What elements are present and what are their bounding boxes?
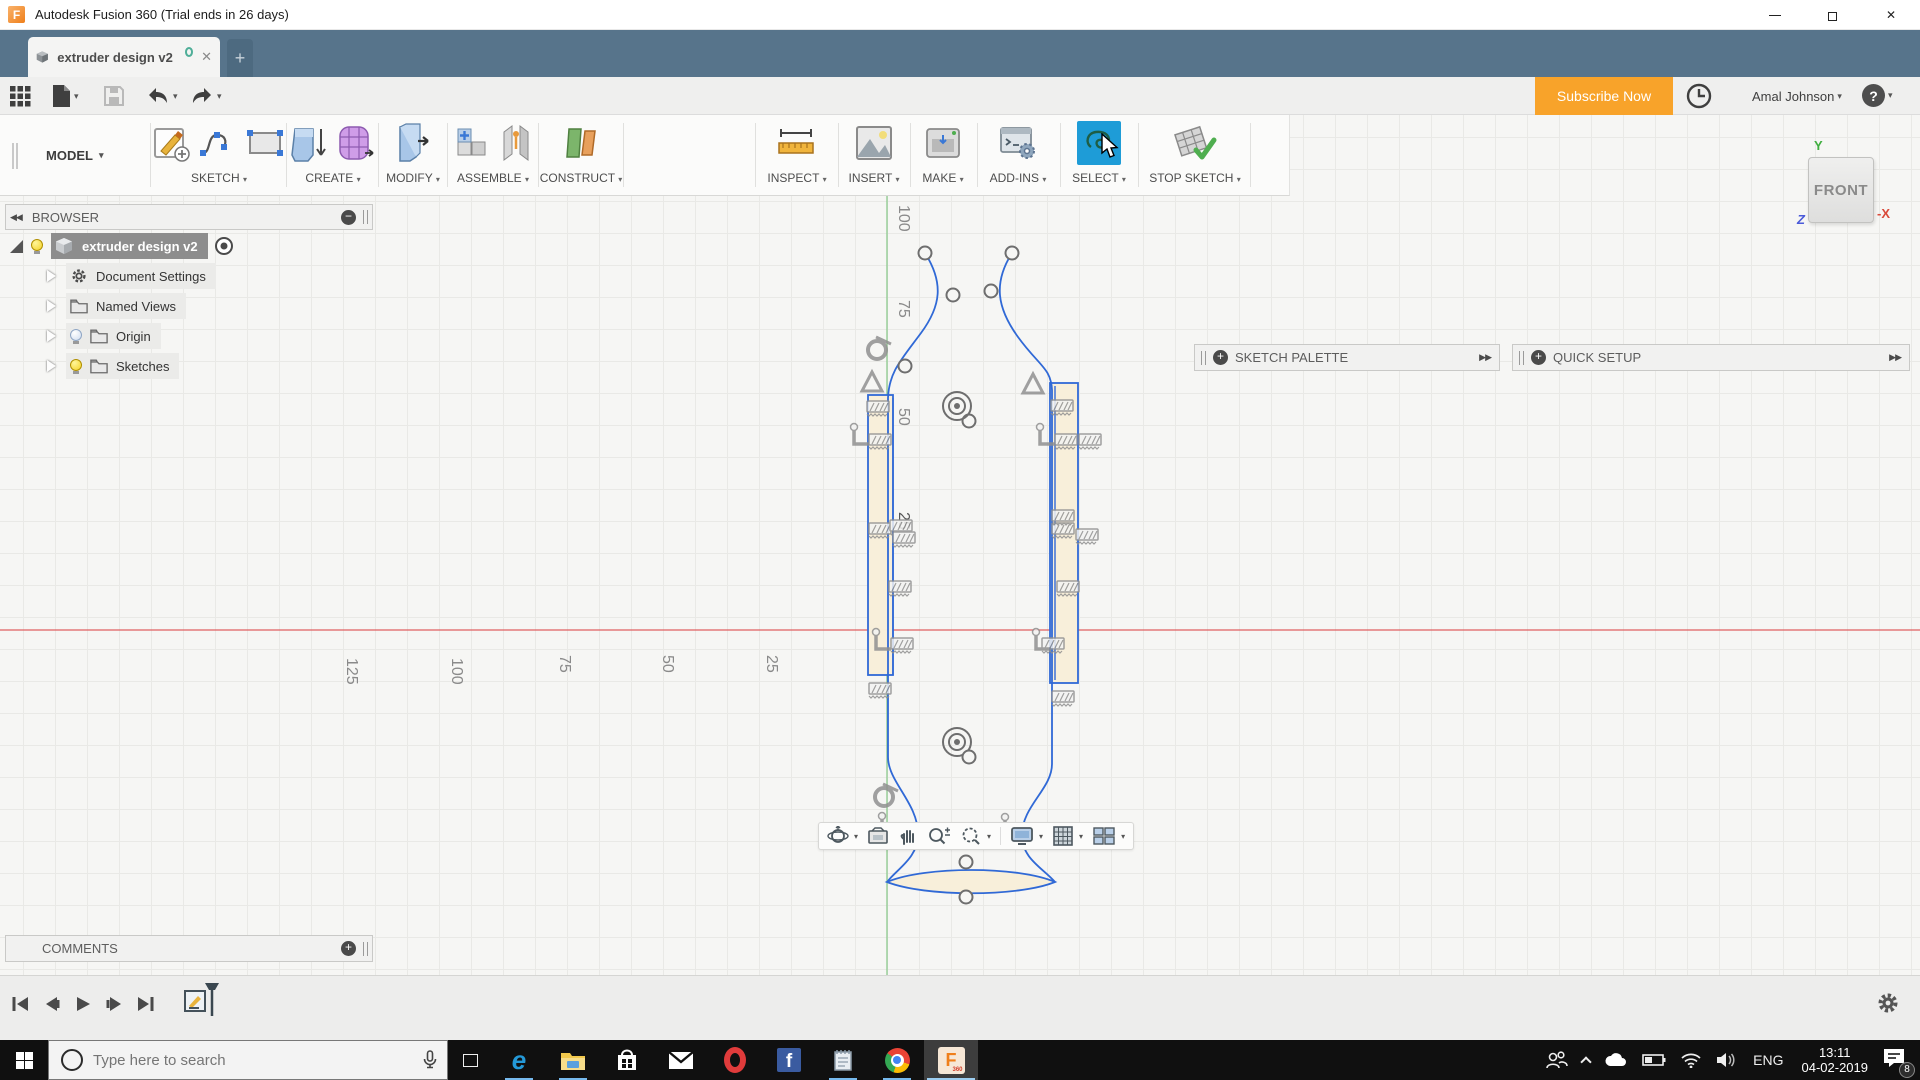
panel-grip[interactable] xyxy=(1201,351,1206,365)
user-account-button[interactable]: Amal Johnson ▾ xyxy=(1752,77,1842,115)
ribbon-group-sketch: SKETCH ▾ xyxy=(152,115,286,195)
gear-icon xyxy=(1876,991,1900,1015)
browser-item-label: Named Views xyxy=(96,299,176,314)
workspace-label: MODEL xyxy=(46,148,93,163)
ribbon-group-insert: INSERT ▾ xyxy=(839,115,909,195)
timeline-settings-button[interactable] xyxy=(1876,991,1900,1020)
ribbon-grip[interactable] xyxy=(12,143,18,169)
ribbon-group-label[interactable]: MAKE ▾ xyxy=(922,171,963,185)
minimize-panel-icon[interactable]: − xyxy=(341,210,356,225)
file-explorer-icon xyxy=(560,1049,586,1071)
group-label-text: MODIFY xyxy=(386,171,432,185)
v-ruler-75: 75 xyxy=(895,300,912,318)
pan-icon[interactable] xyxy=(898,826,918,846)
visibility-bulb-icon[interactable] xyxy=(70,359,82,374)
x-axis-label: -X xyxy=(1877,206,1890,221)
taskbar-file-explorer[interactable] xyxy=(546,1040,600,1080)
viewcube[interactable]: FRONT xyxy=(1808,157,1874,223)
ribbon-group-label[interactable]: ADD-INS ▾ xyxy=(990,171,1047,185)
panel-grip[interactable] xyxy=(363,210,368,224)
ribbon-group-label[interactable]: STOP SKETCH ▾ xyxy=(1149,171,1241,185)
caret-down-icon: ▾ xyxy=(525,175,529,184)
collapsed-triangle-icon[interactable] xyxy=(47,270,56,282)
windows-taskbar: e f xyxy=(0,1040,1920,1080)
ribbon-group-label[interactable]: MODIFY ▾ xyxy=(386,171,440,185)
step-back-button[interactable] xyxy=(42,995,62,1013)
browser-item-label: Origin xyxy=(116,329,151,344)
start-button[interactable] xyxy=(0,1040,48,1080)
folder-icon xyxy=(90,328,108,344)
document-cube-icon xyxy=(36,48,49,66)
stop-sketch-icon[interactable] xyxy=(1172,122,1218,164)
caret-down-icon: ▾ xyxy=(1122,175,1126,184)
caret-down-icon: ▾ xyxy=(1042,175,1046,184)
new-component-icon[interactable] xyxy=(452,122,492,164)
taskbar-notepad[interactable] xyxy=(816,1040,870,1080)
ribbon-group-assemble: ASSEMBLE ▾ xyxy=(449,115,537,195)
ribbon-group-label[interactable]: CONSTRUCT ▾ xyxy=(540,171,622,185)
h-ruler-100: 100 xyxy=(448,658,465,685)
folder-icon xyxy=(70,298,88,314)
group-label-text: INSERT xyxy=(849,171,893,185)
caret-down-icon: ▾ xyxy=(243,175,247,184)
collapsed-triangle-icon[interactable] xyxy=(47,300,56,312)
ribbon-group-create: CREATE ▾ xyxy=(288,115,378,195)
facebook-letter: f xyxy=(786,1052,792,1072)
h-ruler-50: 50 xyxy=(659,655,676,673)
job-status-button[interactable] xyxy=(1686,83,1712,109)
ribbon-group-label[interactable]: SKETCH ▾ xyxy=(191,171,247,185)
expand-panel-icon[interactable]: ▶▶ xyxy=(1889,352,1901,363)
browser-item-document-settings[interactable]: Document Settings xyxy=(43,263,234,289)
notification-badge: 8 xyxy=(1899,1062,1915,1078)
fusion-logo-letter: F xyxy=(13,8,20,22)
caret-down-icon: ▾ xyxy=(618,175,622,184)
navigation-bar: ▾ ▾ ▾ ▾ ▾ xyxy=(818,822,1134,850)
workspace-selector[interactable]: MODEL ▾ xyxy=(46,115,103,195)
notepad-icon xyxy=(832,1048,854,1072)
caret-down-icon: ▾ xyxy=(217,91,222,102)
volume-icon[interactable] xyxy=(1716,1052,1736,1068)
browser-tree: extruder design v2 Document Settings Nam… xyxy=(10,233,234,383)
v-ruler-50: 50 xyxy=(895,408,912,426)
window-titlebar: F Autodesk Fusion 360 (Trial ends in 26 … xyxy=(0,0,1920,30)
timeline-bar xyxy=(0,975,1920,1040)
caret-down-icon: ▾ xyxy=(960,175,964,184)
caret-down-icon: ▾ xyxy=(74,91,79,102)
folder-icon xyxy=(90,358,108,374)
sketch-lens-profile[interactable] xyxy=(887,870,1055,893)
taskbar-edge[interactable]: e xyxy=(492,1040,546,1080)
browser-item[interactable]: Document Settings xyxy=(66,263,216,289)
quick-setup-title: QUICK SETUP xyxy=(1553,350,1641,365)
ribbon-group-label[interactable]: CREATE ▾ xyxy=(305,171,360,185)
step-forward-button[interactable] xyxy=(104,995,124,1013)
close-icon: ✕ xyxy=(1886,8,1896,22)
group-label-text: CONSTRUCT xyxy=(540,171,615,185)
rectangle-icon[interactable] xyxy=(245,123,287,163)
y-axis-label: Y xyxy=(1814,138,1823,153)
mail-icon xyxy=(668,1051,694,1070)
viewcube-front-face[interactable]: FRONT xyxy=(1814,182,1868,199)
subscribe-now-button[interactable]: Subscribe Now xyxy=(1535,77,1673,115)
play-button[interactable] xyxy=(74,995,92,1013)
group-label-text: INSPECT xyxy=(767,171,819,185)
sync-status-icon xyxy=(185,47,193,57)
h-ruler-75: 75 xyxy=(556,655,573,673)
group-label-text: CREATE xyxy=(305,171,353,185)
grid-settings-icon[interactable] xyxy=(1052,826,1074,846)
restore-button[interactable] xyxy=(1804,0,1862,30)
h-ruler-125: 125 xyxy=(343,658,360,685)
plus-glyph: + xyxy=(345,940,352,954)
caret-down-icon[interactable]: ▾ xyxy=(1121,832,1125,841)
taskbar-facebook[interactable]: f xyxy=(762,1040,816,1080)
v-ruler-100: 100 xyxy=(895,205,912,232)
window-title: Autodesk Fusion 360 (Trial ends in 26 da… xyxy=(35,7,289,22)
redo-button[interactable]: ▾ xyxy=(190,80,222,112)
display-settings-icon[interactable] xyxy=(1010,826,1034,846)
browser-item[interactable]: Origin xyxy=(66,323,161,349)
help-icon: ? xyxy=(1862,84,1885,107)
caret-down-icon[interactable]: ▾ xyxy=(1079,832,1083,841)
taskbar-search[interactable] xyxy=(48,1040,448,1080)
caret-down-icon: ▾ xyxy=(1837,91,1842,102)
document-tab-bar: extruder design v2 ✕ + xyxy=(0,30,1920,77)
facebook-icon: f xyxy=(777,1048,801,1072)
expand-triangle-icon[interactable] xyxy=(10,240,23,253)
minimize-button[interactable] xyxy=(1746,0,1804,30)
clock-icon xyxy=(1686,83,1712,109)
windows-logo-icon xyxy=(16,1052,33,1069)
undo-button[interactable]: ▾ xyxy=(146,80,178,112)
ribbon-group-label[interactable]: INSERT ▾ xyxy=(849,171,900,185)
caret-down-icon[interactable]: ▾ xyxy=(854,832,858,841)
ribbon-group-select: SELECT ▾ xyxy=(1062,115,1136,195)
cortana-icon xyxy=(61,1049,83,1071)
file-icon xyxy=(52,85,71,107)
sketch-spline-right[interactable] xyxy=(1000,253,1055,882)
search-input[interactable] xyxy=(93,1052,423,1069)
ribbon-group-modify: MODIFY ▾ xyxy=(380,115,446,195)
spline-icon[interactable] xyxy=(197,123,239,163)
browser-item[interactable]: Named Views xyxy=(66,293,186,319)
caret-down-icon: ▾ xyxy=(1237,175,1241,184)
subscribe-label: Subscribe Now xyxy=(1557,88,1651,104)
insert-image-icon[interactable] xyxy=(853,123,895,163)
tab-close-icon[interactable]: ✕ xyxy=(201,49,212,65)
ribbon-group-inspect: INSPECT ▾ xyxy=(757,115,837,195)
taskbar-store[interactable] xyxy=(600,1040,654,1080)
viewports-icon[interactable] xyxy=(1092,826,1116,846)
joint-icon[interactable] xyxy=(498,122,534,164)
ruler-labels: 125 100 75 50 25 100 75 50 25 xyxy=(343,205,912,685)
panel-grip[interactable] xyxy=(363,942,368,956)
group-label-text: SKETCH xyxy=(191,171,240,185)
fusion-360-sub: 360 xyxy=(952,1067,962,1073)
ribbon-group-label[interactable]: ASSEMBLE ▾ xyxy=(457,171,529,185)
save-icon xyxy=(104,86,124,106)
chrome-icon xyxy=(885,1048,910,1073)
show-hidden-icons-chevron[interactable] xyxy=(1580,1056,1591,1067)
ribbon-group-addins: ADD-INS ▾ xyxy=(978,115,1058,195)
wifi-icon[interactable] xyxy=(1680,1052,1702,1068)
browser-item[interactable]: Sketches xyxy=(66,353,179,379)
ribbon-group-stop-sketch: STOP SKETCH ▾ xyxy=(1140,115,1250,195)
group-label-text: MAKE xyxy=(922,171,956,185)
comments-title: COMMENTS xyxy=(42,941,118,956)
app-grid-icon xyxy=(10,86,31,107)
task-view-button[interactable] xyxy=(448,1040,492,1080)
activate-component-radio[interactable] xyxy=(214,236,234,256)
user-name: Amal Johnson xyxy=(1752,89,1834,104)
taskbar-fusion360[interactable]: F 360 xyxy=(924,1040,978,1080)
browser-item-origin[interactable]: Origin xyxy=(43,323,234,349)
measure-icon[interactable] xyxy=(775,123,819,163)
timeline-marker[interactable] xyxy=(204,982,220,1016)
caret-down-icon: ▾ xyxy=(823,175,827,184)
caret-down-icon: ▾ xyxy=(99,150,104,161)
undo-icon xyxy=(146,86,170,106)
extrude-icon[interactable] xyxy=(289,121,329,165)
sketch-palette-panel[interactable]: + SKETCH PALETTE ▶▶ xyxy=(1194,344,1500,371)
3d-print-icon[interactable] xyxy=(923,123,963,163)
ribbon-group-construct: CONSTRUCT ▾ xyxy=(540,115,622,195)
construct-plane-icon[interactable] xyxy=(561,121,601,165)
people-icon[interactable] xyxy=(1546,1051,1568,1069)
clock-time: 13:11 xyxy=(1802,1045,1869,1060)
caret-down-icon[interactable]: ▾ xyxy=(987,832,991,841)
clock-date: 04-02-2019 xyxy=(1802,1060,1869,1075)
panel-grip[interactable] xyxy=(1519,351,1524,365)
cursor-arrow-icon xyxy=(1100,133,1122,159)
app-launcher-button[interactable] xyxy=(10,80,31,112)
ribbon-group-make: MAKE ▾ xyxy=(911,115,975,195)
expand-panel-icon[interactable]: ▶▶ xyxy=(1479,352,1491,363)
component-cube-icon xyxy=(55,237,74,255)
zoom-icon[interactable] xyxy=(927,826,951,846)
go-to-start-button[interactable] xyxy=(10,995,30,1013)
plus-glyph: + xyxy=(1217,349,1224,363)
group-label-text: ASSEMBLE xyxy=(457,171,522,185)
expand-plus-icon[interactable]: + xyxy=(1213,350,1228,365)
comments-panel-header[interactable]: COMMENTS + xyxy=(5,935,373,962)
taskbar-mail[interactable] xyxy=(654,1040,708,1080)
document-tab-title: extruder design v2 xyxy=(57,50,173,65)
new-tab-button[interactable]: + xyxy=(227,39,253,77)
z-axis-label: Z xyxy=(1797,212,1805,227)
browser-panel-title: BROWSER xyxy=(32,210,99,225)
mouse-cursor xyxy=(1100,133,1122,164)
browser-root-label: extruder design v2 xyxy=(82,239,198,254)
microphone-icon[interactable] xyxy=(423,1050,437,1070)
sketch-geometry[interactable] xyxy=(868,253,1078,893)
scripts-addins-icon[interactable] xyxy=(997,123,1039,163)
ribbon-group-label[interactable]: INSPECT ▾ xyxy=(767,171,826,185)
language-indicator[interactable]: ENG xyxy=(1753,1052,1783,1068)
plus-icon: + xyxy=(235,48,246,69)
expand-plus-icon[interactable]: + xyxy=(1531,350,1546,365)
opera-icon xyxy=(724,1047,746,1073)
help-button[interactable]: ? ▾ xyxy=(1862,84,1893,107)
question-glyph: ? xyxy=(1869,88,1878,104)
sketch-spline-left[interactable] xyxy=(887,253,938,882)
group-label-text: SELECT xyxy=(1072,171,1118,185)
collapsed-triangle-icon[interactable] xyxy=(47,360,56,372)
collapse-panel-icon[interactable]: ◀◀ xyxy=(10,212,22,223)
quick-setup-panel[interactable]: + QUICK SETUP ▶▶ xyxy=(1512,344,1910,371)
visibility-bulb-icon[interactable] xyxy=(31,239,43,254)
fusion360-icon: F 360 xyxy=(938,1047,965,1074)
store-icon xyxy=(616,1048,638,1072)
redo-icon xyxy=(190,86,214,106)
quick-access-toolbar: ▾ ▾ ▾ Subscribe Now Amal Johnson ▾ ? ▾ xyxy=(0,77,1920,115)
browser-item-label: Document Settings xyxy=(96,269,206,284)
minus-glyph: − xyxy=(345,209,352,223)
browser-item-named-views[interactable]: Named Views xyxy=(43,293,234,319)
browser-panel-header[interactable]: ◀◀ BROWSER − xyxy=(5,204,373,230)
browser-item-sketches[interactable]: Sketches xyxy=(43,353,234,379)
timeline-feature-sketch[interactable] xyxy=(184,988,210,1019)
edge-icon: e xyxy=(512,1047,526,1073)
ribbon-group-label[interactable]: SELECT ▾ xyxy=(1072,171,1126,185)
onedrive-cloud-icon[interactable] xyxy=(1604,1052,1628,1068)
browser-root-item[interactable]: extruder design v2 xyxy=(51,233,208,259)
caret-down-icon: ▾ xyxy=(895,175,899,184)
create-form-icon[interactable] xyxy=(335,121,377,165)
group-label-text: ADD-INS xyxy=(990,171,1039,185)
caret-down-icon: ▾ xyxy=(173,91,178,102)
h-ruler-25: 25 xyxy=(763,655,780,673)
action-center-button[interactable]: 8 xyxy=(1882,1047,1906,1074)
save-button[interactable] xyxy=(104,80,124,112)
zoom-window-icon[interactable] xyxy=(960,826,982,846)
collapsed-triangle-icon[interactable] xyxy=(47,330,56,342)
fusion-app-icon: F xyxy=(8,6,25,23)
caret-down-icon[interactable]: ▾ xyxy=(1039,832,1043,841)
taskbar-clock[interactable]: 13:11 04-02-2019 xyxy=(1802,1045,1869,1075)
close-button[interactable]: ✕ xyxy=(1862,0,1920,30)
caret-down-icon: ▾ xyxy=(357,175,361,184)
sketch-points[interactable] xyxy=(899,247,1019,904)
group-label-text: STOP SKETCH xyxy=(1149,171,1233,185)
create-sketch-icon[interactable] xyxy=(151,123,191,163)
plus-glyph: + xyxy=(1535,349,1542,363)
browser-item-label: Sketches xyxy=(116,359,169,374)
caret-down-icon: ▾ xyxy=(436,175,440,184)
orbit-icon[interactable] xyxy=(827,826,849,846)
go-to-end-button[interactable] xyxy=(136,995,156,1013)
visibility-bulb-off-icon[interactable] xyxy=(70,329,82,344)
browser-root-row[interactable]: extruder design v2 xyxy=(10,233,234,259)
add-comment-icon[interactable]: + xyxy=(341,941,356,956)
caret-down-icon: ▾ xyxy=(1888,90,1893,101)
sketch-palette-title: SKETCH PALETTE xyxy=(1235,350,1348,365)
ribbon-toolbar: MODEL ▾ SKETCH ▾ xyxy=(0,115,1290,196)
gear-icon xyxy=(70,267,88,285)
file-menu-button[interactable]: ▾ xyxy=(52,80,79,112)
press-pull-icon[interactable] xyxy=(392,121,434,165)
battery-icon[interactable] xyxy=(1642,1053,1666,1067)
document-tab[interactable]: extruder design v2 ✕ xyxy=(28,37,220,77)
taskbar-chrome[interactable] xyxy=(870,1040,924,1080)
taskbar-opera[interactable] xyxy=(708,1040,762,1080)
look-at-icon[interactable] xyxy=(867,827,889,845)
